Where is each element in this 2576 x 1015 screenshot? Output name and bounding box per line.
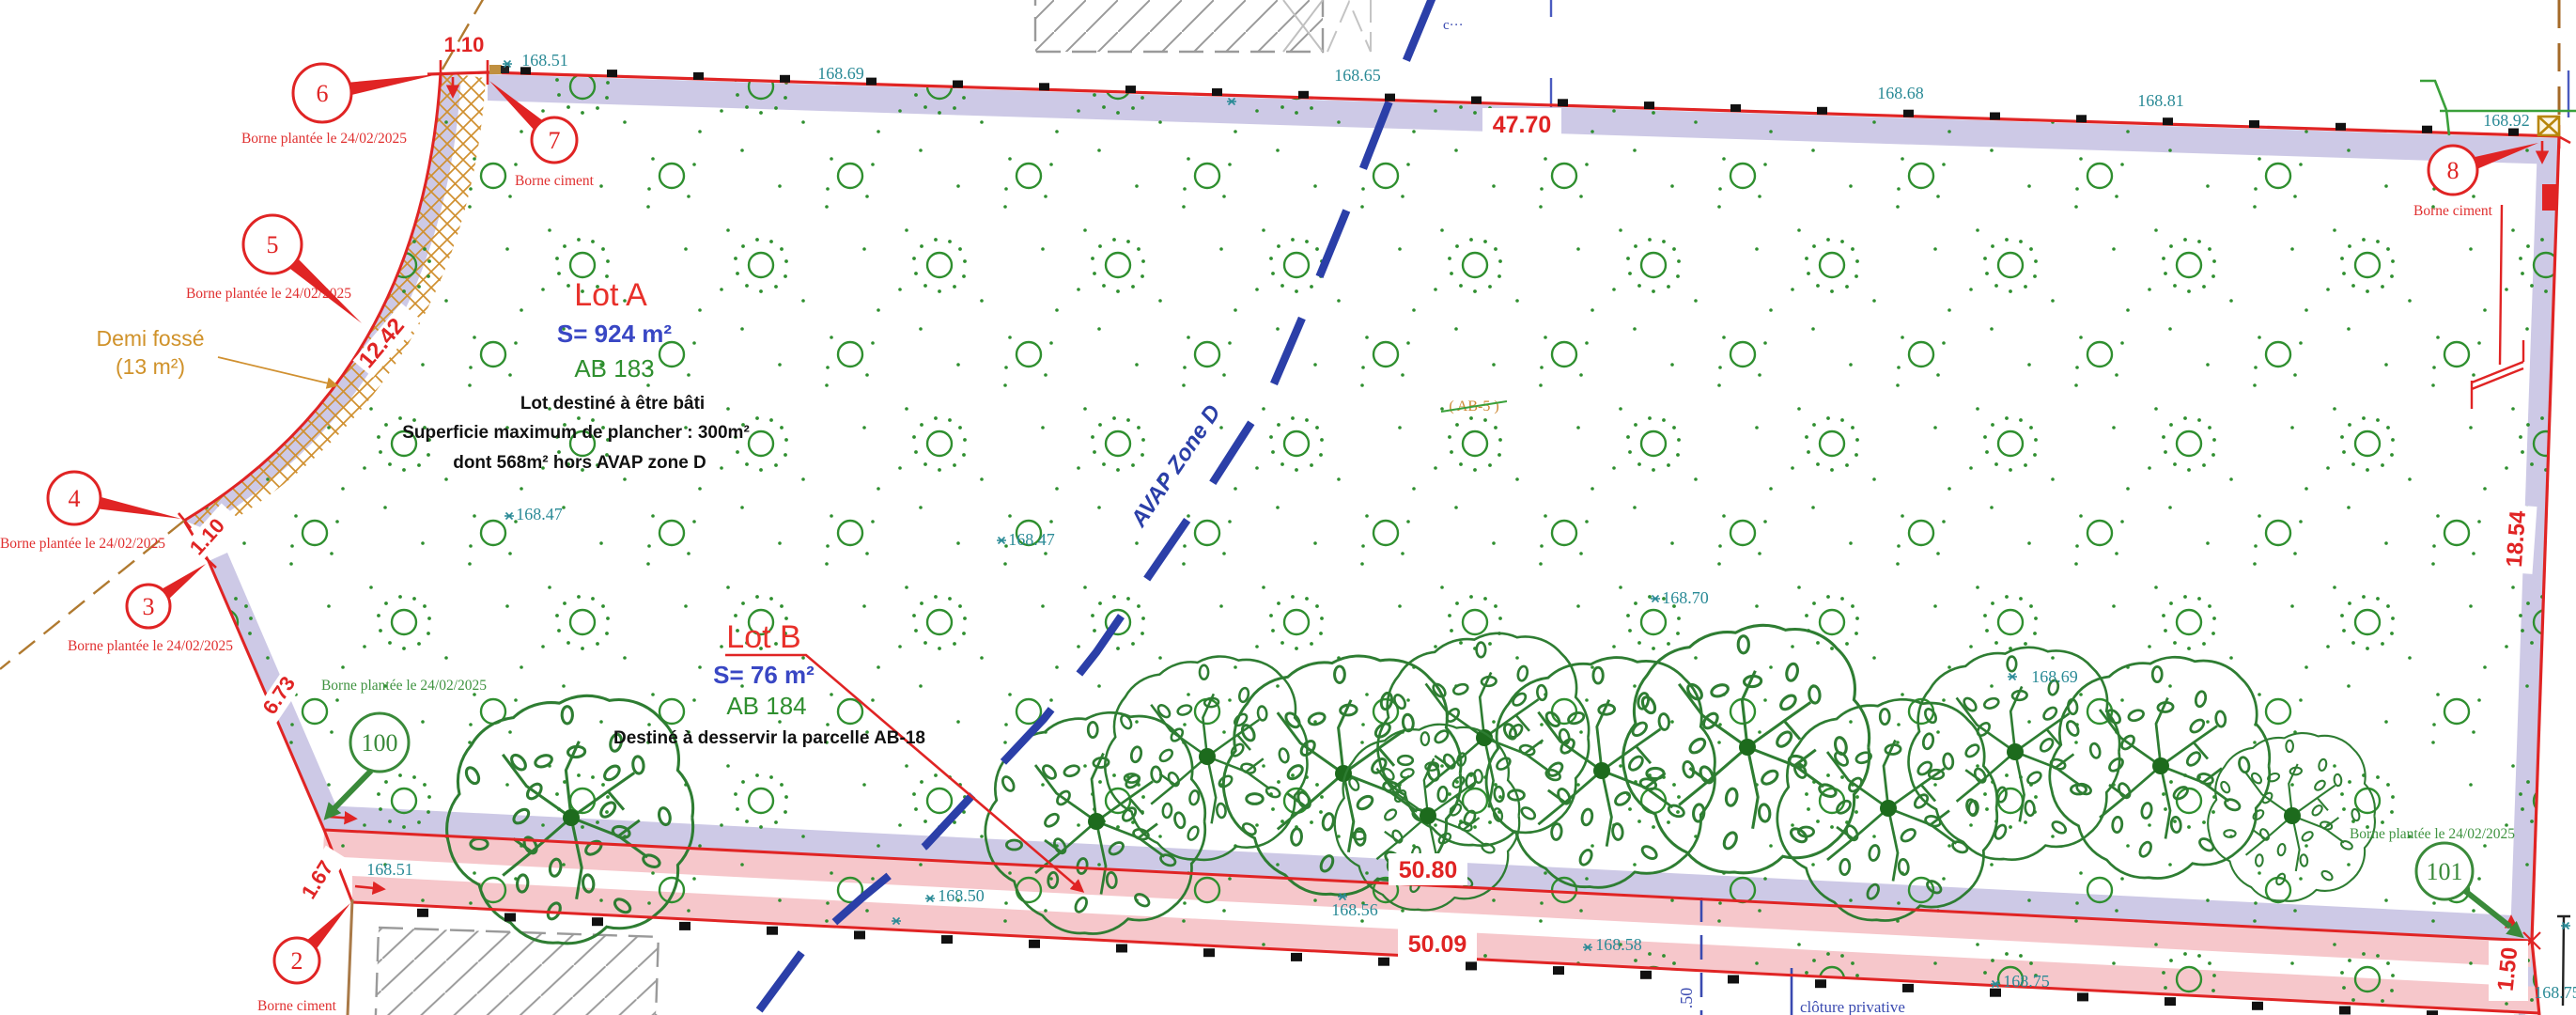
- svg-text:Lot B: Lot B: [726, 619, 800, 655]
- svg-text:168.58: 168.58: [1595, 935, 1642, 954]
- svg-text:168.51: 168.51: [366, 860, 413, 879]
- svg-text:3: 3: [143, 593, 155, 620]
- svg-text:100: 100: [362, 729, 398, 757]
- svg-text:Borne plantée le 24/02/2025: Borne plantée le 24/02/2025: [2350, 826, 2515, 842]
- svg-text:Borne ciment: Borne ciment: [515, 173, 595, 189]
- svg-text:168.75: 168.75: [2534, 983, 2576, 1002]
- svg-text:5: 5: [267, 231, 279, 258]
- svg-text:7: 7: [549, 127, 561, 154]
- svg-text:Borne ciment: Borne ciment: [2413, 203, 2493, 219]
- svg-text:Borne plantée le 24/02/2025: Borne plantée le 24/02/2025: [0, 536, 165, 552]
- svg-text:18.54: 18.54: [2502, 509, 2531, 568]
- svg-text:Lot destiné à être bâti: Lot destiné à être bâti: [520, 394, 705, 414]
- svg-text:50.80: 50.80: [1399, 857, 1458, 883]
- svg-text:8: 8: [2447, 157, 2460, 184]
- svg-text:168.50: 168.50: [938, 886, 985, 905]
- svg-text:(13 m²): (13 m²): [116, 354, 185, 379]
- svg-text:47.70: 47.70: [1493, 112, 1552, 138]
- svg-text:168.81: 168.81: [2137, 91, 2184, 110]
- svg-text:168.70: 168.70: [1662, 588, 1709, 607]
- svg-text:168.51: 168.51: [521, 51, 568, 70]
- svg-text:168.47: 168.47: [516, 505, 563, 523]
- svg-text:168.69: 168.69: [2031, 667, 2078, 686]
- svg-text:101: 101: [2427, 858, 2463, 885]
- svg-text:50.09: 50.09: [1408, 931, 1467, 958]
- svg-text:6: 6: [317, 80, 329, 107]
- svg-text:.50: .50: [1677, 988, 1696, 1009]
- svg-text:4: 4: [69, 485, 81, 512]
- svg-text:168.65: 168.65: [1334, 66, 1381, 85]
- svg-text:Destiné à desservir la parcell: Destiné à desservir la parcelle AB-18: [613, 728, 925, 748]
- svg-text:1.50: 1.50: [2493, 946, 2523, 992]
- svg-text:AB 184: AB 184: [726, 692, 806, 720]
- svg-text:168.69: 168.69: [817, 64, 864, 83]
- svg-text:dont 568m² hors AVAP zone D: dont 568m² hors AVAP zone D: [453, 453, 706, 473]
- svg-text:Borne plantée le 24/02/2025: Borne plantée le 24/02/2025: [321, 678, 487, 694]
- svg-text:1.10: 1.10: [444, 33, 485, 56]
- svg-text:Superficie maximum de plancher: Superficie maximum de plancher : 300m²: [402, 423, 750, 443]
- svg-text:168.47: 168.47: [1008, 530, 1055, 549]
- svg-text:S= 76 m²: S= 76 m²: [713, 661, 815, 689]
- svg-text:2: 2: [291, 947, 303, 975]
- svg-text:168.92: 168.92: [2483, 111, 2530, 130]
- svg-text:S= 924 m²: S= 924 m²: [557, 320, 672, 348]
- svg-text:Borne plantée le 24/02/2025: Borne plantée le 24/02/2025: [241, 131, 407, 147]
- svg-text:168.68: 168.68: [1877, 84, 1924, 102]
- svg-text:168.75: 168.75: [2003, 972, 2050, 991]
- svg-text:168.56: 168.56: [1331, 900, 1378, 919]
- svg-text:Demi fossé: Demi fossé: [96, 326, 204, 351]
- svg-text:c···: c···: [1443, 18, 1464, 33]
- svg-text:Borne ciment: Borne ciment: [257, 998, 337, 1014]
- svg-text:AB 183: AB 183: [574, 354, 654, 383]
- svg-text:Lot A: Lot A: [574, 277, 647, 313]
- svg-text:Borne plantée le 24/02/2025: Borne plantée le 24/02/2025: [68, 638, 233, 654]
- svg-text:clôture privative: clôture privative: [1800, 998, 1905, 1015]
